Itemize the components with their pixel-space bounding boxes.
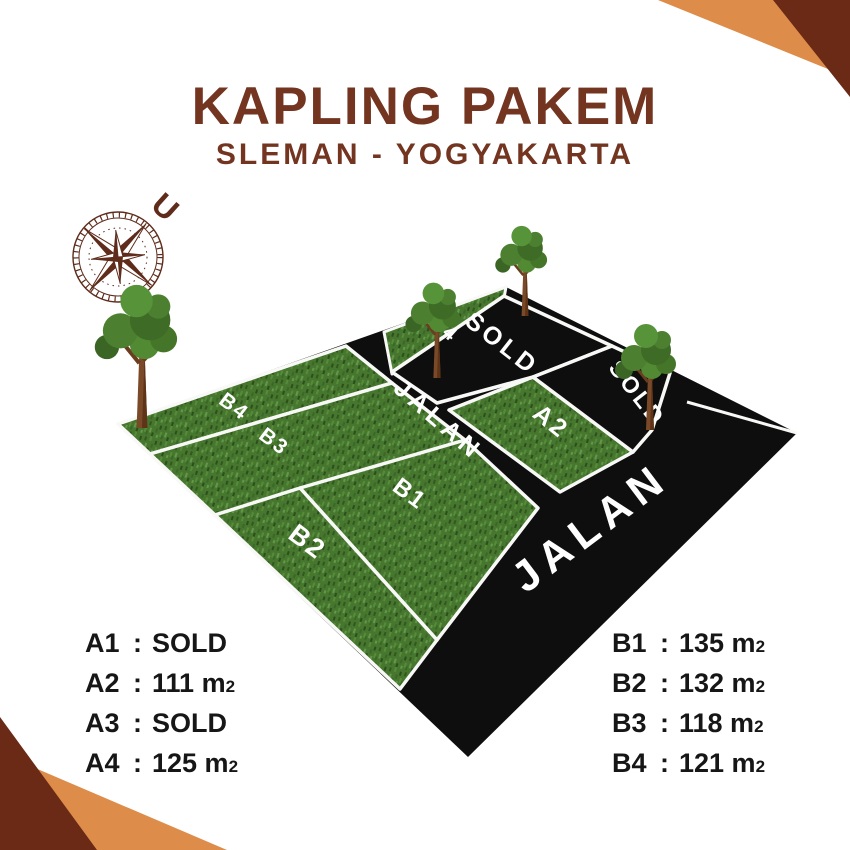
plot-value-sup: 2 bbox=[229, 757, 238, 777]
plot-code: A1 bbox=[85, 628, 131, 659]
plot-value: SOLD bbox=[152, 628, 227, 659]
plot-value: 118 m bbox=[679, 708, 754, 739]
plot-code: A4 bbox=[85, 748, 131, 779]
separator: : bbox=[133, 668, 142, 699]
separator: : bbox=[133, 748, 142, 779]
legend-item-b4: B4 : 121 m2 bbox=[612, 748, 850, 788]
legend-item-a4: A4 : 125 m2 bbox=[85, 748, 345, 788]
plot-value: 132 m bbox=[679, 668, 756, 699]
plot-value-sup: 2 bbox=[226, 677, 235, 697]
legend-item-a3: A3 : SOLD bbox=[85, 708, 345, 748]
plot-value-sup: 2 bbox=[756, 637, 765, 657]
plot-code: B2 bbox=[612, 668, 658, 699]
plot-code: A2 bbox=[85, 668, 131, 699]
plot-value: SOLD bbox=[152, 708, 227, 739]
legend-column-a: A1 : SOLD A2 : 111 m2 A3 : SOLD A4 : 125… bbox=[85, 628, 345, 788]
plot-value: 135 m bbox=[679, 628, 756, 659]
separator: : bbox=[660, 748, 669, 779]
legend-item-b1: B1 : 135 m2 bbox=[612, 628, 850, 668]
plot-value-sup: 2 bbox=[756, 757, 765, 777]
poster: KAPLING PAKEM SLEMAN - YOGYAKARTA bbox=[0, 0, 850, 850]
plot-code: A3 bbox=[85, 708, 131, 739]
separator: : bbox=[660, 708, 669, 739]
plot-value: 121 m bbox=[679, 748, 756, 779]
plot-value: 111 m bbox=[152, 668, 226, 699]
legend-column-b: B1 : 135 m2 B2 : 132 m2 B3 : 118 m2 B4 :… bbox=[612, 628, 850, 788]
plot-value: 125 m bbox=[152, 748, 229, 779]
plot-code: B1 bbox=[612, 628, 658, 659]
separator: : bbox=[133, 708, 142, 739]
separator: : bbox=[133, 628, 142, 659]
legend-item-a2: A2 : 111 m2 bbox=[85, 668, 345, 708]
legend-item-b3: B3 : 118 m2 bbox=[612, 708, 850, 748]
legend-item-a1: A1 : SOLD bbox=[85, 628, 345, 668]
legend-item-b2: B2 : 132 m2 bbox=[612, 668, 850, 708]
plot-value-sup: 2 bbox=[756, 677, 765, 697]
plot-code: B3 bbox=[612, 708, 658, 739]
separator: : bbox=[660, 668, 669, 699]
plot-code: B4 bbox=[612, 748, 658, 779]
plot-value-sup: 2 bbox=[754, 717, 763, 737]
separator: : bbox=[660, 628, 669, 659]
